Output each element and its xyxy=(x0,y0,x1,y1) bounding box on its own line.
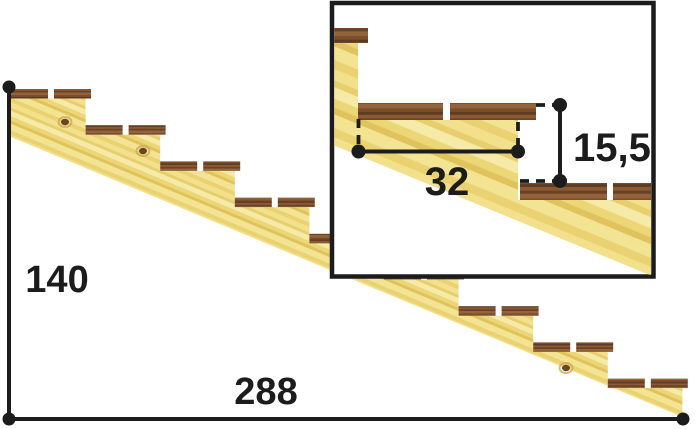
tread-plank xyxy=(533,342,570,352)
tread-plank xyxy=(576,342,613,352)
diagram-svg: 140 288 32 15,5 xyxy=(0,0,697,429)
tread-plank xyxy=(502,306,539,316)
wood-knot xyxy=(562,365,570,371)
detail-inset: 32 15,5 xyxy=(332,3,654,277)
tread-plank xyxy=(203,161,240,171)
tread-plank xyxy=(334,28,368,43)
tread-plank xyxy=(278,198,315,208)
tread-plank xyxy=(160,161,197,171)
tread-plank xyxy=(608,379,645,389)
stair-diagram: 140 288 32 15,5 xyxy=(0,0,697,429)
tread-plank xyxy=(651,379,688,389)
dimension-dot xyxy=(352,145,366,159)
tread-plank xyxy=(129,125,166,135)
dimension-dot xyxy=(677,413,690,426)
dimension-dot xyxy=(553,174,567,188)
dimension-dot xyxy=(3,81,16,94)
tread-plank xyxy=(86,125,123,135)
wood-knot xyxy=(61,119,69,125)
tread-plank xyxy=(450,103,536,120)
tread-plank xyxy=(613,183,651,200)
tread-plank xyxy=(358,103,443,120)
dimension-dot xyxy=(3,413,16,426)
tread-plank xyxy=(459,306,496,316)
step-rise-label: 15,5 xyxy=(573,126,651,170)
tread-plank xyxy=(235,198,272,208)
step-run-label: 32 xyxy=(425,160,470,204)
total-rise-label: 140 xyxy=(25,259,88,301)
dimension-dot xyxy=(511,145,525,159)
tread-plank xyxy=(54,89,91,99)
wood-knot xyxy=(139,148,147,154)
total-run-label: 288 xyxy=(234,371,297,413)
dimension-dot xyxy=(553,98,567,112)
tread-plank xyxy=(11,89,48,99)
